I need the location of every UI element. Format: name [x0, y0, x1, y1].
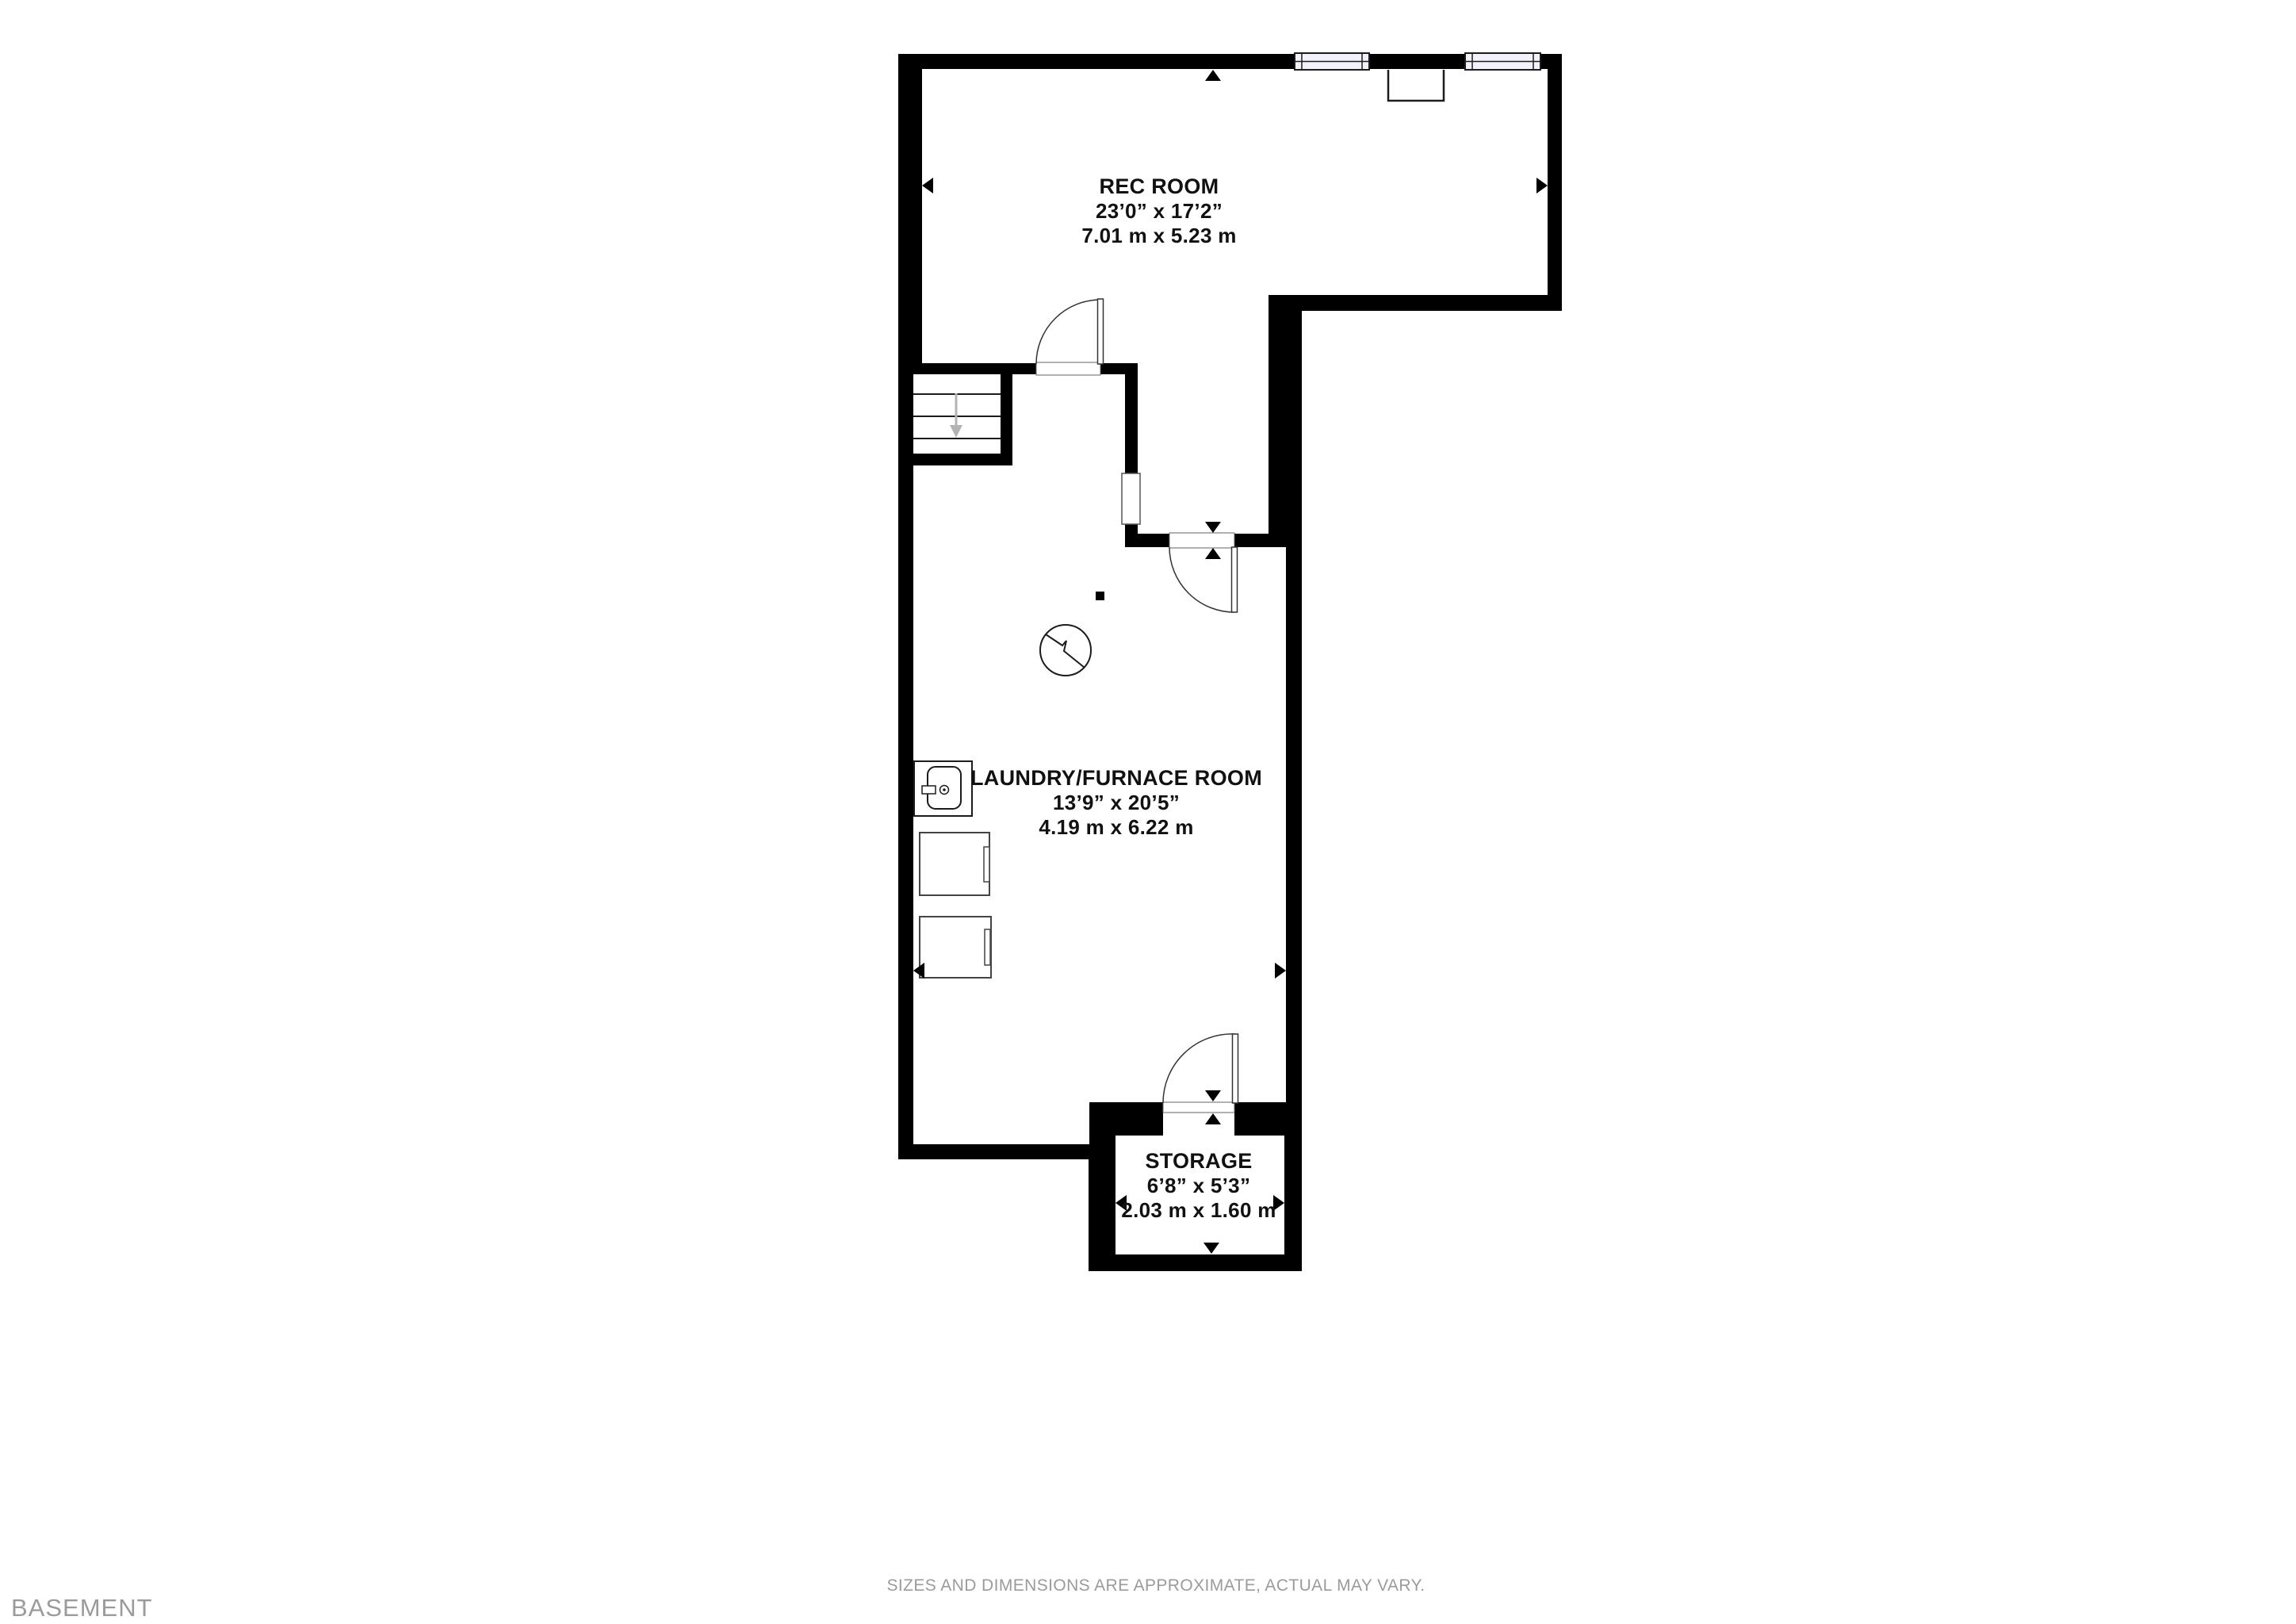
wall: [898, 374, 913, 1159]
window-icon: [1465, 53, 1540, 70]
wall: [1125, 374, 1138, 473]
dryer-icon: [920, 917, 991, 978]
cased-opening: [1122, 473, 1140, 524]
room-name: LAUNDRY/FURNACE ROOM: [970, 766, 1262, 791]
dimension-arrow-icon: [1205, 548, 1221, 559]
door-swing-icon: [1163, 1034, 1238, 1113]
wall: [1234, 1102, 1302, 1136]
wall: [1234, 534, 1302, 547]
wall: [898, 1144, 1104, 1159]
room-dimensions-metric: 7.01 m x 5.23 m: [1081, 224, 1236, 248]
wall: [1125, 524, 1138, 547]
dimension-arrow-icon: [1205, 522, 1221, 533]
room-name: REC ROOM: [1081, 174, 1236, 199]
room-label-laundry-furnace-room: LAUNDRY/FURNACE ROOM 13’9” x 20’5” 4.19 …: [970, 766, 1262, 840]
room-name: STORAGE: [1121, 1149, 1276, 1174]
room-dimensions-imperial: 13’9” x 20’5”: [970, 791, 1262, 815]
dimension-arrow-icon: [1205, 1113, 1221, 1124]
wall: [1100, 363, 1138, 374]
wall: [1548, 69, 1562, 311]
room-dimensions-metric: 4.19 m x 6.22 m: [970, 815, 1262, 840]
door-swing-icon: [1169, 533, 1238, 612]
wall: [1089, 1254, 1302, 1271]
dimension-arrow-icon: [1205, 1090, 1221, 1101]
wall: [922, 363, 1036, 374]
wall: [1001, 374, 1012, 465]
furnace-icon: [1040, 625, 1091, 676]
door-swing-icon: [1036, 299, 1104, 375]
disclaimer-text: SIZES AND DIMENSIONS ARE APPROXIMATE, AC…: [886, 1576, 1425, 1595]
washer-icon: [920, 833, 989, 895]
dimension-arrow-icon: [922, 178, 933, 193]
room-dimensions-metric: 2.03 m x 1.60 m: [1121, 1198, 1276, 1223]
room-dimensions-imperial: 23’0” x 17’2”: [1081, 199, 1236, 224]
wall: [898, 454, 1012, 465]
floor-title: BASEMENT: [11, 1594, 153, 1622]
room-dimensions-imperial: 6’8” x 5’3”: [1121, 1174, 1276, 1198]
laundry-sink-icon: [914, 761, 972, 816]
dimension-arrow-icon: [1205, 70, 1221, 81]
wall: [1269, 295, 1562, 311]
wall: [1286, 547, 1302, 1102]
room-label-rec-room: REC ROOM 23’0” x 17’2” 7.01 m x 5.23 m: [1081, 174, 1236, 248]
wall: [1284, 1136, 1302, 1271]
wall: [1089, 1102, 1163, 1136]
wall: [1138, 534, 1169, 547]
support-post-icon: [1096, 592, 1104, 600]
window-icon: [1295, 53, 1369, 70]
wall: [898, 54, 1562, 69]
dimension-arrow-icon: [1203, 1243, 1219, 1254]
dimension-arrow-icon: [1275, 963, 1286, 979]
room-label-storage: STORAGE 6’8” x 5’3” 2.03 m x 1.60 m: [1121, 1149, 1276, 1223]
dimension-arrow-icon: [1536, 178, 1548, 193]
wall: [898, 69, 922, 374]
wall: [1089, 1136, 1115, 1271]
wall: [1269, 311, 1302, 547]
floorplan-canvas: REC ROOM 23’0” x 17’2” 7.01 m x 5.23 m L…: [0, 0, 2296, 1624]
fireplace-icon: [1388, 70, 1444, 101]
staircase: [913, 393, 1001, 439]
